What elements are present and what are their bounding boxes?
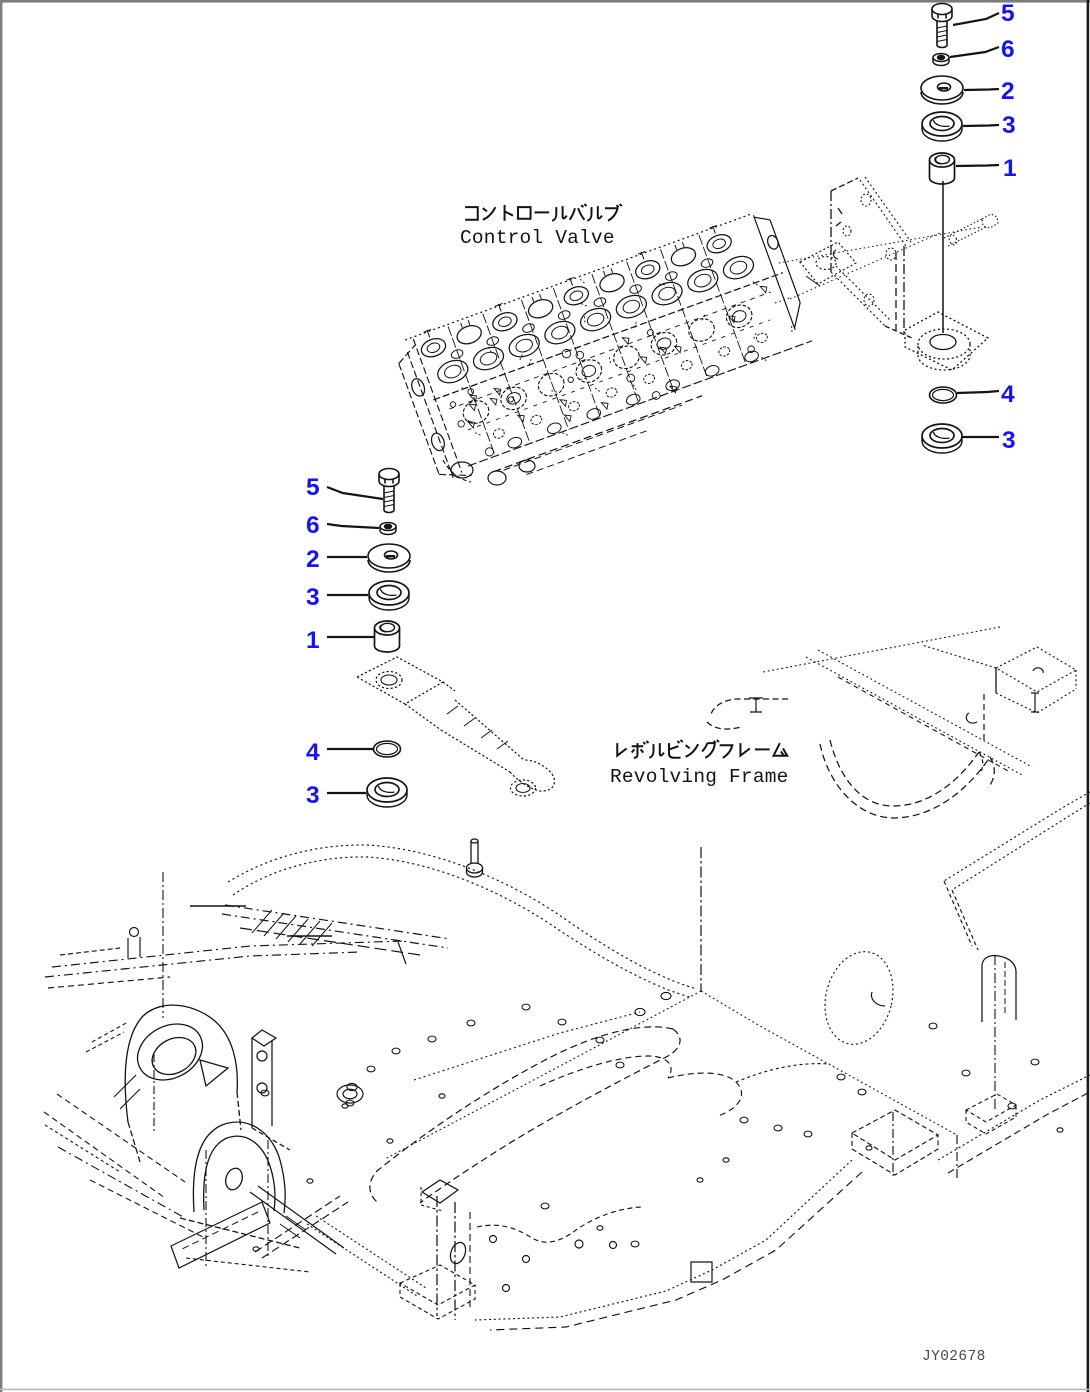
svg-text:1: 1 — [1003, 155, 1017, 182]
svg-text:5: 5 — [306, 474, 320, 501]
svg-text:3: 3 — [1002, 427, 1016, 454]
svg-text:3: 3 — [306, 584, 320, 611]
svg-text:Control Valve: Control Valve — [460, 227, 615, 249]
svg-text:Revolving Frame: Revolving Frame — [610, 766, 789, 788]
svg-text:1: 1 — [306, 627, 320, 654]
svg-text:2: 2 — [1001, 78, 1015, 105]
svg-text:6: 6 — [1001, 36, 1015, 63]
svg-text:4: 4 — [306, 739, 320, 766]
svg-text:4: 4 — [1001, 381, 1015, 408]
svg-text:6: 6 — [306, 512, 320, 539]
svg-text:2: 2 — [306, 546, 320, 573]
svg-text:JY02678: JY02678 — [922, 1349, 986, 1365]
svg-text:5: 5 — [1001, 0, 1015, 27]
svg-text:3: 3 — [1002, 112, 1016, 139]
svg-text:3: 3 — [306, 782, 320, 809]
